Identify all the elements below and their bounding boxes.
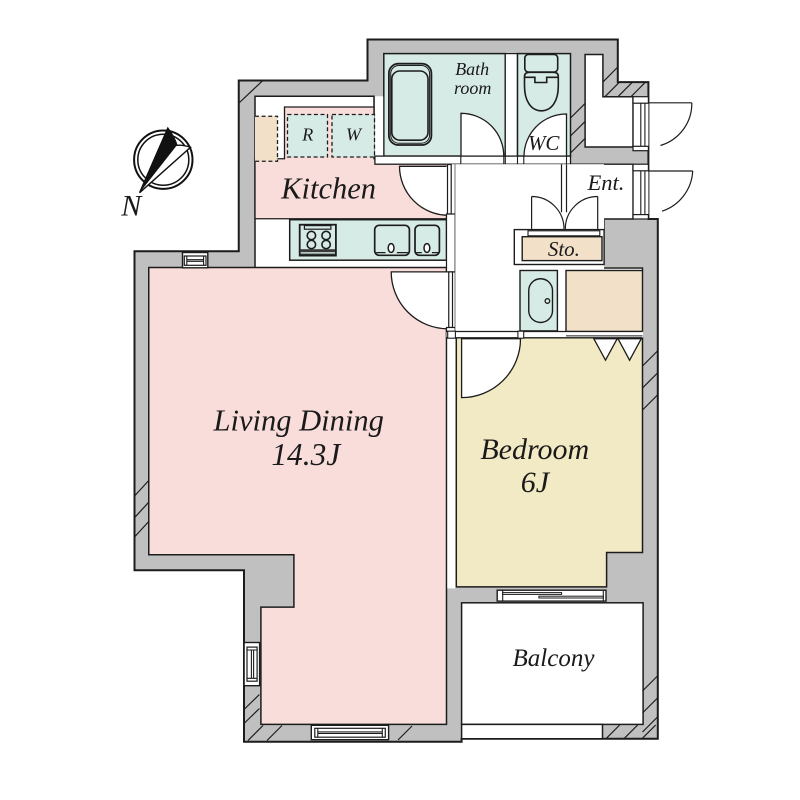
svg-text:WC: WC: [528, 131, 560, 155]
svg-text:Living Dining: Living Dining: [213, 404, 384, 438]
svg-text:Sto.: Sto.: [548, 237, 580, 261]
svg-text:Balcony: Balcony: [513, 645, 596, 672]
svg-text:Kitchen: Kitchen: [280, 172, 376, 206]
svg-text:Bedroom: Bedroom: [480, 433, 589, 466]
svg-text:W: W: [346, 125, 363, 145]
svg-text:R: R: [301, 125, 313, 145]
svg-text:N: N: [120, 190, 143, 223]
svg-text:Ent.: Ent.: [587, 170, 625, 195]
svg-text:room: room: [454, 78, 491, 98]
svg-text:6J: 6J: [521, 466, 551, 499]
svg-text:14.3J: 14.3J: [271, 437, 342, 472]
svg-text:Bath: Bath: [455, 59, 489, 79]
